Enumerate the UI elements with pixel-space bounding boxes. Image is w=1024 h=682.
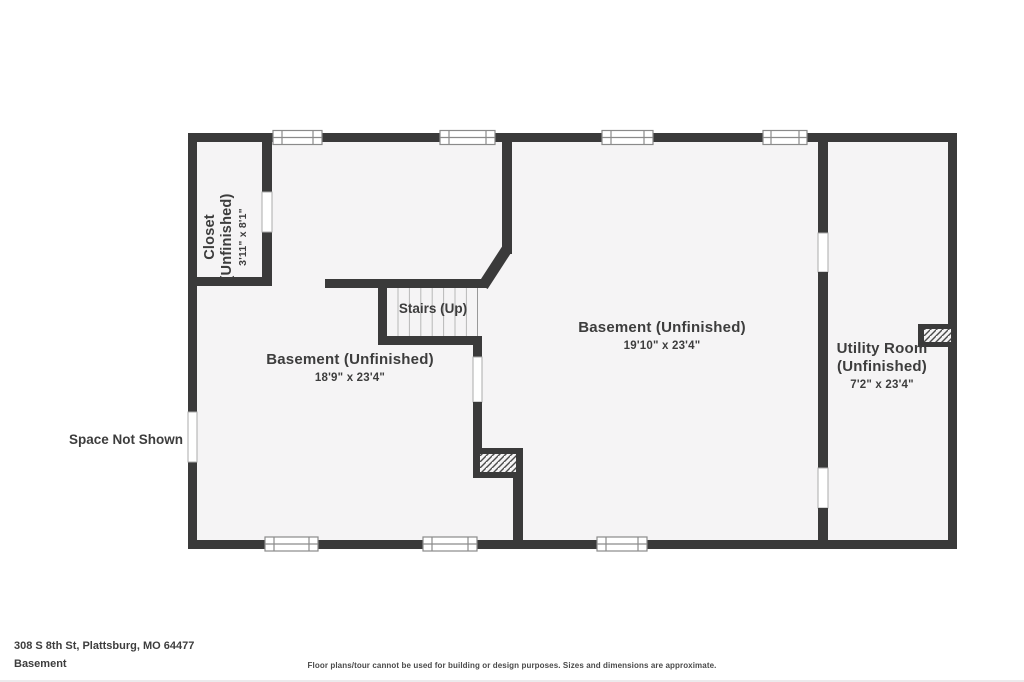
room-dimensions: 3'11" x 8'1": [237, 157, 250, 317]
wall-segment: [818, 133, 828, 233]
wall-segment: [473, 345, 482, 357]
room-dimensions: 18'9" x 23'4": [230, 371, 470, 385]
window-symbol: [440, 131, 495, 145]
room-dimensions: 7'2" x 23'4": [807, 378, 957, 392]
room-label-closet: Closet (Unfinished) 3'11" x 8'1": [202, 157, 256, 317]
room-name: Basement (Unfinished): [542, 319, 782, 337]
window-symbol: [273, 131, 322, 145]
disclaimer-text: Floor plans/tour cannot be used for buil…: [0, 661, 1024, 670]
divider-vertical-wall: [502, 133, 512, 254]
chimney-hatch-lines: [480, 454, 516, 472]
wall-segment: [473, 402, 482, 448]
address-text: 308 S 8th St, Plattsburg, MO 64477: [14, 640, 194, 652]
door-opening: [818, 468, 828, 508]
below-stairs-wall: [473, 345, 482, 448]
room-label-utility: Utility Room (Unfinished) 7'2" x 23'4": [807, 340, 957, 392]
window-symbol: [763, 131, 807, 145]
room-dimensions: 19'10" x 23'4": [542, 339, 782, 353]
window-symbol: [597, 537, 647, 551]
room-label-basement-right: Basement (Unfinished) 19'10" x 23'4": [542, 319, 782, 353]
space-not-shown-label: Space Not Shown: [40, 432, 183, 447]
wall-below-chimney: [513, 478, 523, 549]
stairs-bottom-wall: [378, 336, 482, 345]
door-opening: [818, 233, 828, 272]
room-name: Closet: [202, 157, 219, 317]
room-qualifier: (Unfinished): [807, 358, 957, 376]
room-name: Utility Room: [807, 340, 957, 358]
door-opening-closet: [262, 192, 272, 232]
stairs-label: Stairs (Up): [383, 301, 483, 316]
room-name: Basement (Unfinished): [230, 351, 470, 369]
window-symbol: [602, 131, 653, 145]
room-qualifier: (Unfinished): [219, 157, 236, 317]
door-opening: [473, 357, 482, 402]
wall-segment: [818, 508, 828, 549]
wall-left: [188, 133, 197, 549]
window-symbol: [423, 537, 477, 551]
stairs-top-wall: [325, 279, 488, 288]
floorplan-canvas: Closet (Unfinished) 3'11" x 8'1" Basemen…: [0, 0, 1024, 682]
door-opening-left-wall: [188, 412, 197, 462]
window-symbol: [265, 537, 318, 551]
room-label-basement-left: Basement (Unfinished) 18'9" x 23'4": [230, 351, 470, 385]
